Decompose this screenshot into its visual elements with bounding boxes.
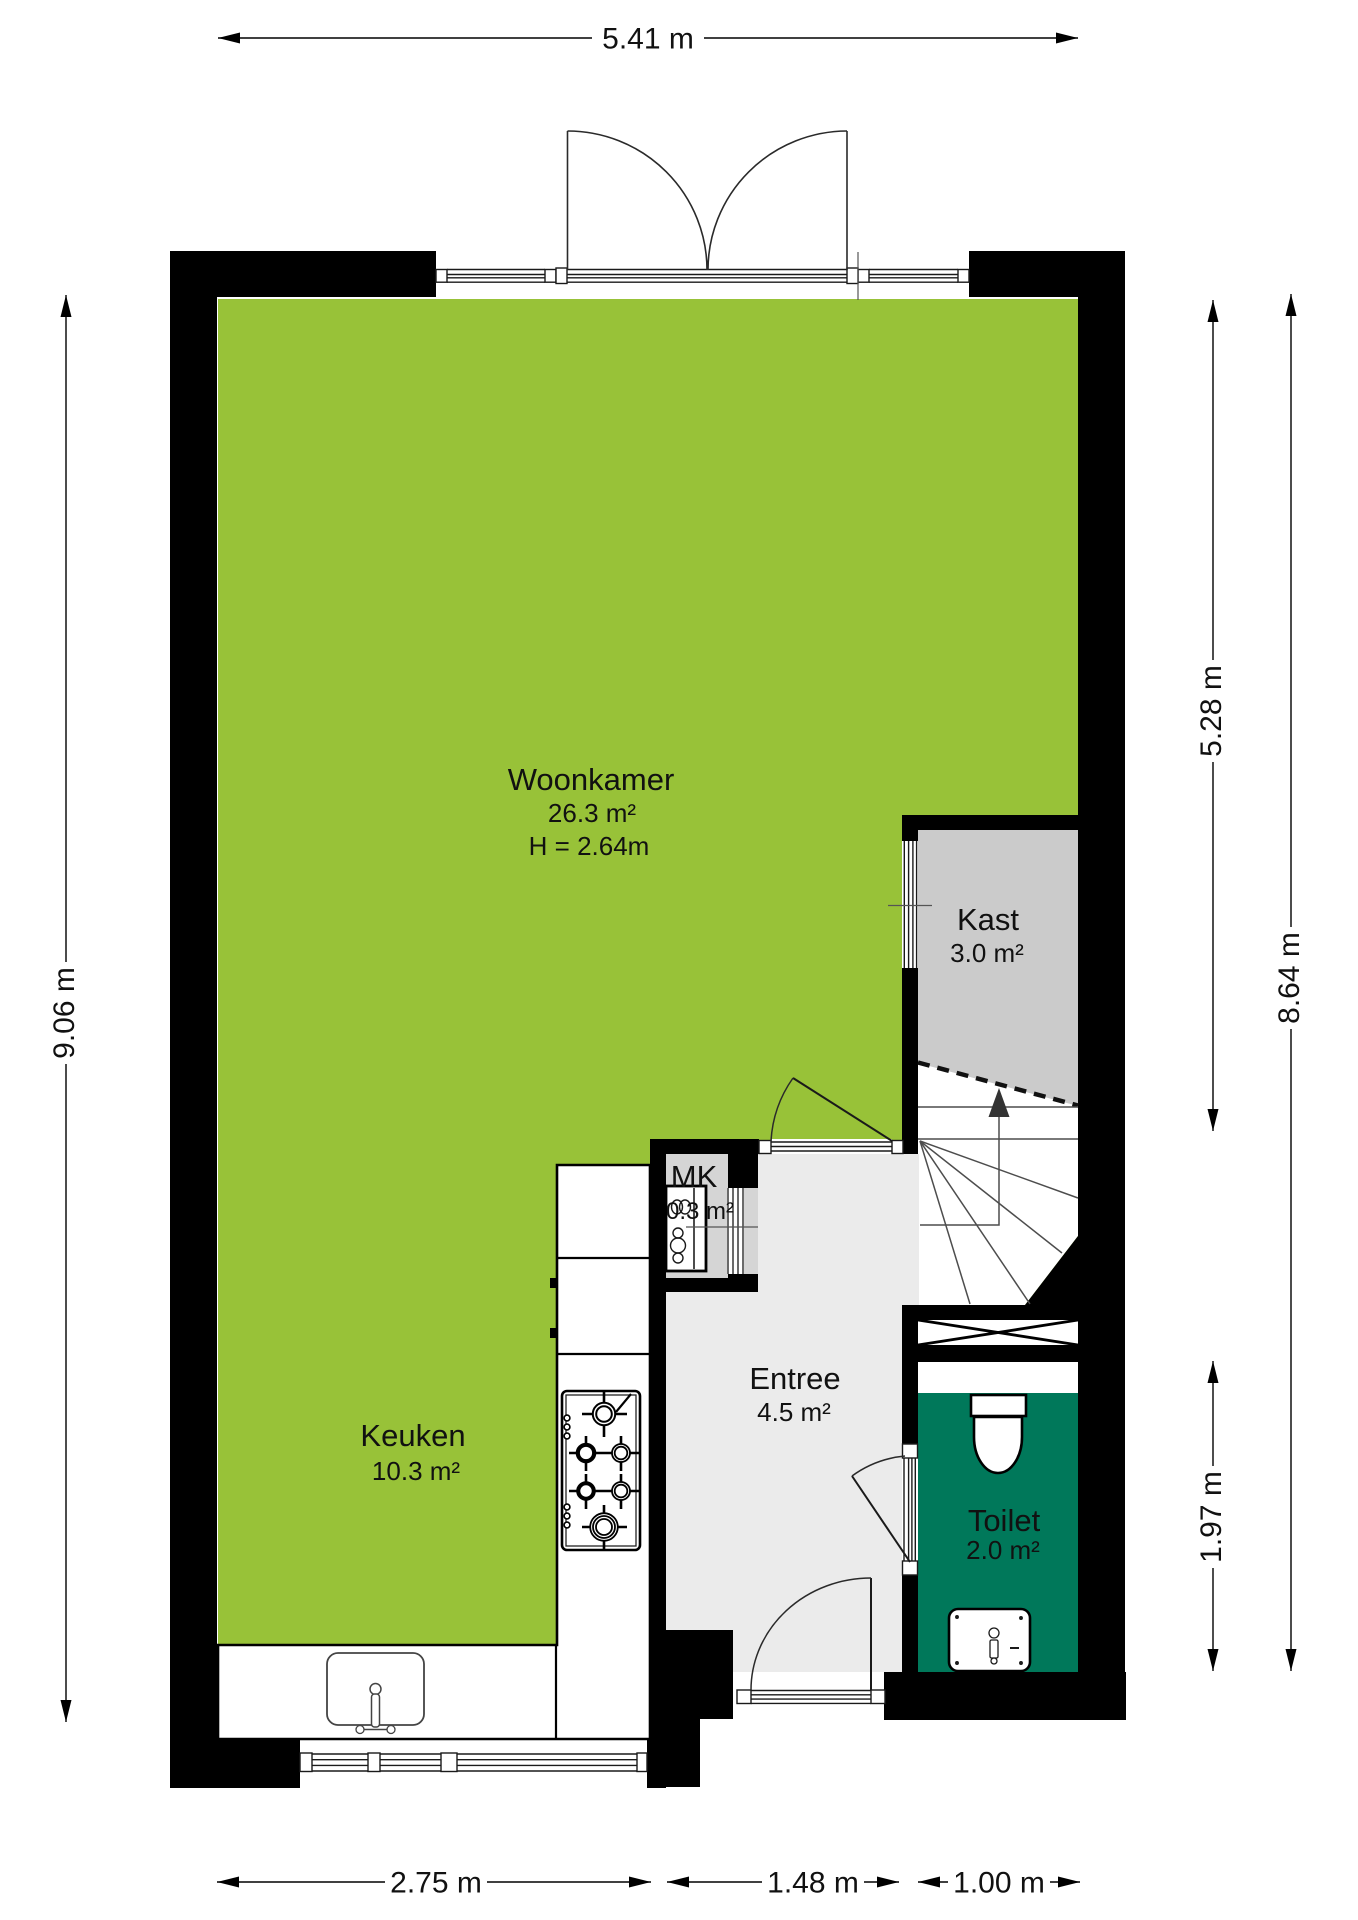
svg-text:5.28 m: 5.28 m [1195, 665, 1228, 757]
svg-text:MK: MK [671, 1159, 718, 1194]
svg-text:Keuken: Keuken [360, 1418, 465, 1453]
svg-text:0.3 m²: 0.3 m² [666, 1198, 734, 1225]
svg-text:Kast: Kast [957, 902, 1019, 937]
svg-text:10.3 m²: 10.3 m² [372, 1456, 460, 1486]
svg-text:2.0 m²: 2.0 m² [966, 1535, 1040, 1565]
svg-text:1.00 m: 1.00 m [953, 1867, 1045, 1900]
svg-text:3.0 m²: 3.0 m² [950, 938, 1024, 968]
svg-text:2.75 m: 2.75 m [390, 1867, 482, 1900]
svg-text:Woonkamer: Woonkamer [508, 762, 675, 797]
svg-text:1.97 m: 1.97 m [1195, 1471, 1228, 1563]
svg-text:H = 2.64m: H = 2.64m [529, 831, 650, 861]
svg-text:1.48 m: 1.48 m [767, 1867, 859, 1900]
svg-text:26.3 m²: 26.3 m² [548, 798, 636, 828]
svg-text:Entree: Entree [749, 1361, 840, 1396]
svg-text:5.41 m: 5.41 m [602, 23, 694, 56]
svg-text:8.64 m: 8.64 m [1273, 932, 1306, 1024]
svg-text:4.5 m²: 4.5 m² [757, 1397, 831, 1427]
svg-text:9.06 m: 9.06 m [48, 967, 81, 1059]
svg-text:Toilet: Toilet [968, 1503, 1041, 1538]
